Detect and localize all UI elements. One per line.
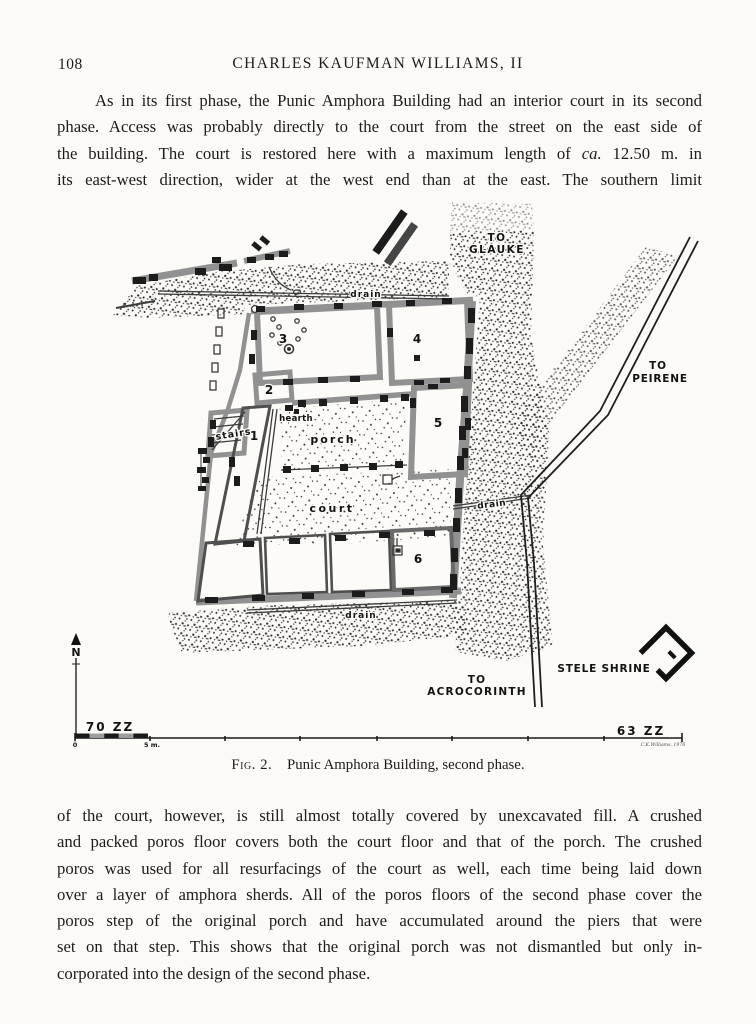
text-line: set on that step. This shows that the or… xyxy=(57,934,702,960)
label-scale-zero: 0 xyxy=(73,741,78,749)
label-elevation-west: 70 ZZ xyxy=(86,720,134,734)
label-room-4: 4 xyxy=(413,332,421,346)
label-room-5: 5 xyxy=(434,416,442,430)
label-north: N xyxy=(71,646,80,659)
label-to-peirene: PEIRENE xyxy=(632,373,688,385)
label-elevation-east: 63 ZZ xyxy=(617,724,665,738)
label-court: court xyxy=(309,502,354,515)
text-line: of the court, however, is still almost t… xyxy=(57,803,702,829)
figure-caption: Fig. 2. Punic Amphora Building, second p… xyxy=(0,757,756,774)
label-to-acrocorinth: TO xyxy=(468,674,487,686)
label-stele-shrine: STELE SHRINE xyxy=(557,663,650,675)
label-hearth: hearth xyxy=(279,414,313,424)
label-to-acrocorinth: ACROCORINTH xyxy=(427,686,526,698)
page-title: CHARLES KAUFMAN WILLIAMS, II xyxy=(0,55,756,73)
caption-figure-number: Fig. 2. xyxy=(231,757,272,773)
label-room-1: 1 xyxy=(250,429,258,443)
label-room-2: 2 xyxy=(265,383,273,397)
text-line: corporated into the design of the second… xyxy=(57,961,702,987)
label-porch: porch xyxy=(310,433,355,446)
label-drain-south: drain xyxy=(345,611,376,621)
text-line: the building. The court is restored here… xyxy=(57,141,702,167)
datum-line xyxy=(75,733,682,743)
paragraph-bottom: of the court, however, is still almost t… xyxy=(57,803,702,987)
label-to-glauke: TO xyxy=(487,232,506,244)
draftsman-signature: C.K.Williams, 1978 xyxy=(641,742,685,748)
text-line: poros step of the original porch and hav… xyxy=(57,908,702,934)
label-to-glauke: GLAUKE xyxy=(469,244,525,256)
label-room-3: 3 xyxy=(279,332,287,346)
running-head: 108 CHARLES KAUFMAN WILLIAMS, II xyxy=(0,55,756,77)
label-to-peirene: TO xyxy=(649,360,667,372)
text-line: poros was used for all resurfacings of t… xyxy=(57,856,702,882)
text-span-italic: ca. xyxy=(582,144,602,163)
figure-plan: TO GLAUKE TO PEIRENE TO ACROCORINTH STEL… xyxy=(55,196,711,752)
label-room-6: 6 xyxy=(414,552,422,566)
paragraph-top: As in its first phase, the Punic Amphora… xyxy=(57,88,702,193)
text-line: over a layer of amphora sherds. All of t… xyxy=(57,882,702,908)
scale-bar xyxy=(75,734,148,739)
text-line: its east-west direction, wider at the we… xyxy=(57,167,702,193)
label-scale-five: 5 m. xyxy=(144,741,160,749)
text-line: As in its first phase, the Punic Amphora… xyxy=(57,88,702,114)
text-line: phase. Access was probably directly to t… xyxy=(57,114,702,140)
text-span: 12.50 m. in xyxy=(602,144,702,163)
label-drain-north: drain xyxy=(350,290,381,300)
text-line: and packed poros floor covers both the c… xyxy=(57,829,702,855)
caption-text: Punic Amphora Building, second phase. xyxy=(287,757,525,773)
text-span: the building. The court is restored here… xyxy=(57,144,582,163)
